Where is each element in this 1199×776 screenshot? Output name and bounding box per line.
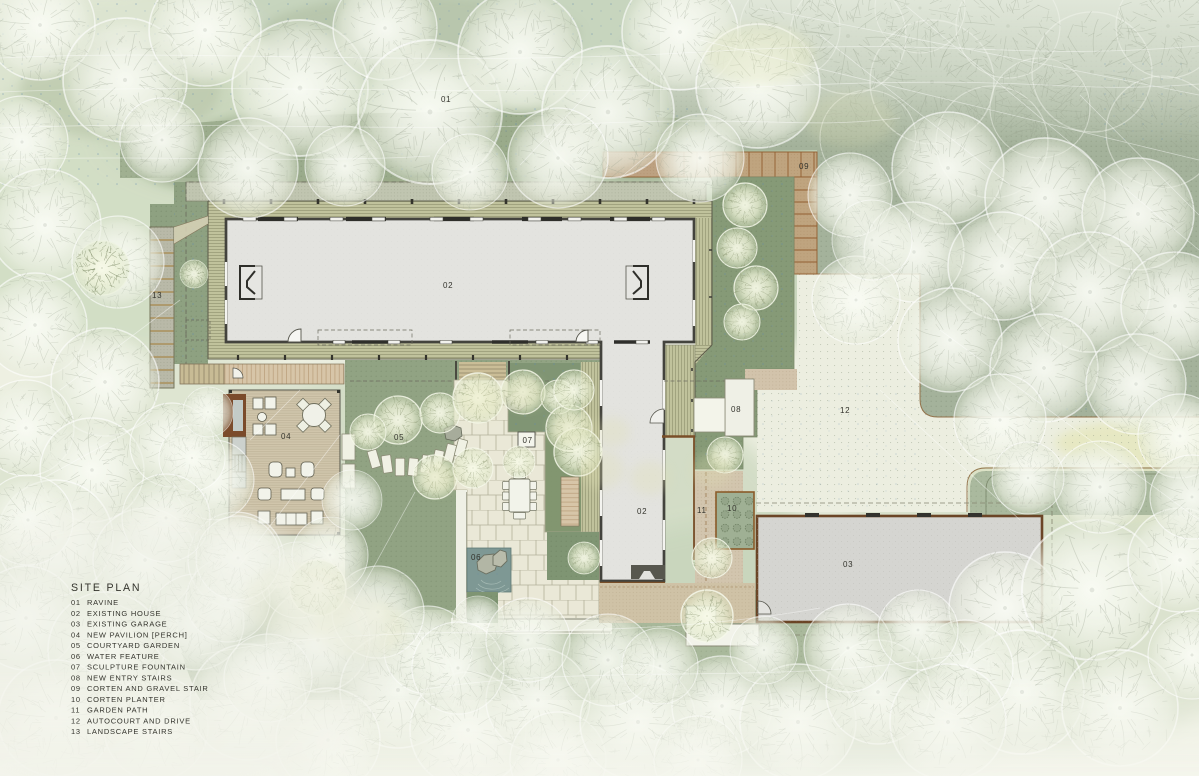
svg-text:07: 07 — [71, 663, 81, 672]
svg-text:06: 06 — [71, 652, 81, 661]
svg-text:EXISTING HOUSE: EXISTING HOUSE — [87, 609, 161, 618]
svg-text:WATER FEATURE: WATER FEATURE — [87, 652, 160, 661]
svg-text:AUTOCOURT AND DRIVE: AUTOCOURT AND DRIVE — [87, 716, 191, 725]
svg-text:CORTEN AND GRAVEL STAIR: CORTEN AND GRAVEL STAIR — [87, 684, 209, 693]
svg-text:01: 01 — [71, 598, 81, 607]
svg-text:04: 04 — [71, 630, 81, 639]
svg-text:02: 02 — [637, 507, 647, 516]
svg-text:11: 11 — [71, 706, 80, 715]
svg-text:02: 02 — [443, 281, 453, 290]
svg-text:GARDEN PATH: GARDEN PATH — [87, 706, 148, 715]
svg-text:LANDSCAPE STAIRS: LANDSCAPE STAIRS — [87, 727, 173, 736]
svg-text:11: 11 — [697, 506, 707, 515]
svg-text:09: 09 — [71, 684, 81, 693]
svg-text:SCULPTURE FOUNTAIN: SCULPTURE FOUNTAIN — [87, 663, 186, 672]
svg-text:05: 05 — [71, 641, 81, 650]
svg-text:08: 08 — [71, 673, 81, 682]
svg-text:NEW PAVILION [PERCH]: NEW PAVILION [PERCH] — [87, 630, 188, 639]
svg-text:NEW ENTRY STAIRS: NEW ENTRY STAIRS — [87, 673, 172, 682]
svg-text:07: 07 — [523, 436, 533, 445]
svg-text:SITE PLAN: SITE PLAN — [71, 582, 141, 594]
svg-text:02: 02 — [71, 609, 81, 618]
svg-text:05: 05 — [394, 433, 404, 442]
svg-text:10: 10 — [727, 504, 737, 513]
svg-text:RAVINE: RAVINE — [87, 598, 119, 607]
svg-text:03: 03 — [71, 620, 81, 629]
svg-text:03: 03 — [843, 560, 853, 569]
svg-text:01: 01 — [441, 95, 451, 104]
svg-text:13: 13 — [71, 727, 81, 736]
svg-text:06: 06 — [471, 553, 481, 562]
svg-text:12: 12 — [840, 406, 850, 415]
svg-text:13: 13 — [152, 291, 162, 300]
svg-text:12: 12 — [71, 716, 81, 725]
svg-text:04: 04 — [281, 432, 291, 441]
svg-text:EXISTING GARAGE: EXISTING GARAGE — [87, 620, 167, 629]
svg-text:09: 09 — [799, 162, 809, 171]
svg-text:08: 08 — [731, 405, 741, 414]
svg-text:COURTYARD GARDEN: COURTYARD GARDEN — [87, 641, 180, 650]
svg-text:10: 10 — [71, 695, 81, 704]
svg-text:CORTEN PLANTER: CORTEN PLANTER — [87, 695, 166, 704]
